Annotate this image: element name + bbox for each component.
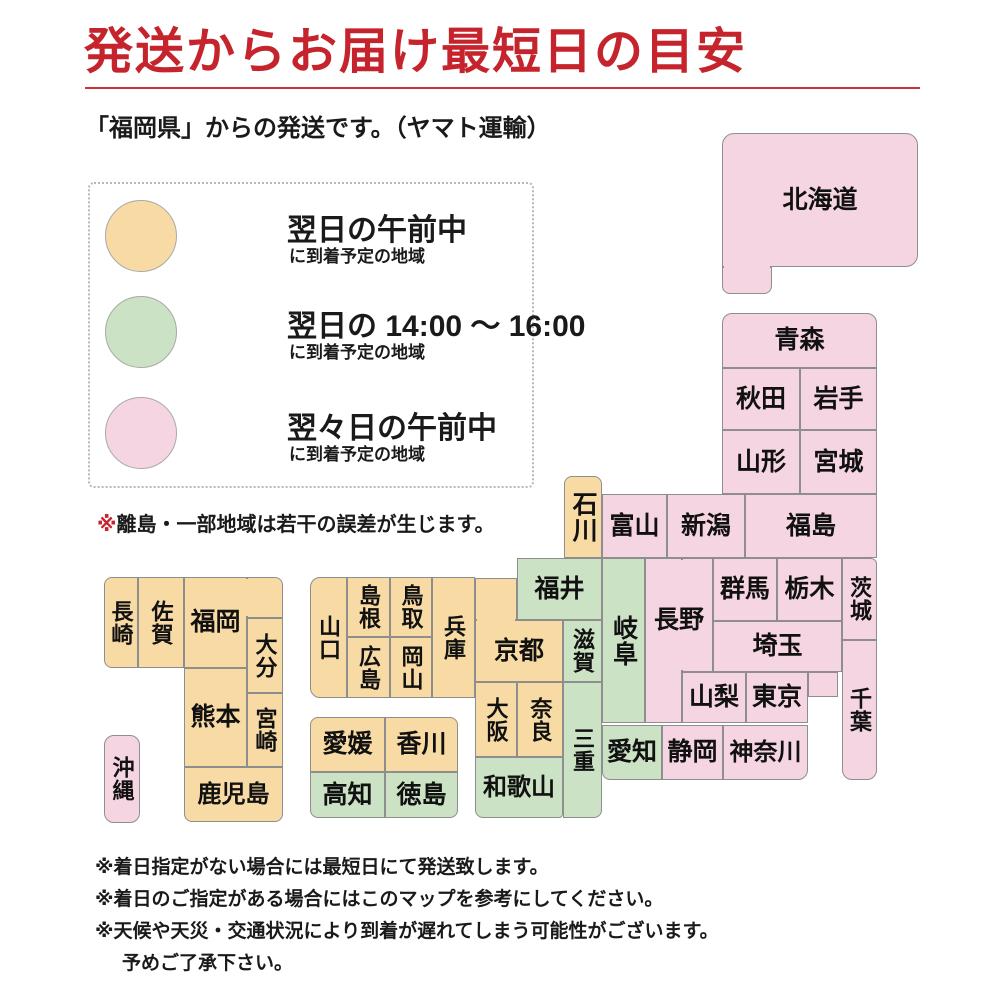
pref-akita: 秋田 xyxy=(722,368,800,430)
pref-aichi: 愛知 xyxy=(602,725,662,780)
footnote-3: ※天候や天災・交通状況により到着が遅れてしまう可能性がございます。 xyxy=(95,916,719,943)
pref-ishikawa: 石川 xyxy=(564,476,602,558)
pref-nara: 奈良 xyxy=(517,682,563,757)
pref-shizuoka: 静岡 xyxy=(662,725,723,780)
pref-fukuoka: 福岡 xyxy=(184,577,247,668)
pref-iwate: 岩手 xyxy=(800,368,877,430)
pref-hokkaido-tab xyxy=(722,267,772,294)
pref-oita: 大分 xyxy=(247,618,283,693)
pref-yamaguchi: 山口 xyxy=(310,577,347,698)
pref-mie: 三重 xyxy=(563,682,602,818)
hokkaido-seam xyxy=(724,265,770,269)
pref-kyoto: 京都 xyxy=(475,620,563,682)
pref-chiba: 千葉 xyxy=(842,640,877,780)
pref-saitama: 埼玉 xyxy=(713,621,842,672)
pref-tochigi: 栃木 xyxy=(777,558,842,621)
pref-shiga: 滋賀 xyxy=(563,620,602,682)
pref-tokushima: 徳島 xyxy=(385,772,458,818)
pref-kyoto-arm xyxy=(475,578,517,620)
footnote-4: 予めご了承下さい。 xyxy=(122,948,293,975)
pref-hiroshima: 広島 xyxy=(347,637,390,698)
pref-saga: 佐賀 xyxy=(138,577,184,668)
pref-ehime: 愛媛 xyxy=(310,717,385,772)
pref-nagano-label: 長野 xyxy=(645,598,713,638)
pref-osaka: 大阪 xyxy=(475,682,517,757)
pref-okayama: 岡山 xyxy=(390,637,432,698)
pref-kochi: 高知 xyxy=(310,772,385,818)
pref-kagawa: 香川 xyxy=(385,717,458,772)
pref-kanagawa: 神奈川 xyxy=(723,725,808,780)
kyoto-seam xyxy=(477,618,515,622)
pref-kagoshima: 鹿児島 xyxy=(184,767,283,822)
pref-miyagi: 宮城 xyxy=(800,430,877,494)
footnote-2: ※着日のご指定がある場合にはこのマップを参考にしてください。 xyxy=(95,884,663,911)
footnote-1: ※着日指定がない場合には最短日にて発送致します。 xyxy=(95,852,549,879)
pref-tokyo: 東京 xyxy=(746,672,808,723)
pref-shimane: 島根 xyxy=(347,577,390,637)
pref-yamanashi: 山梨 xyxy=(682,672,746,723)
pref-kumamoto: 熊本 xyxy=(184,668,247,767)
pref-hokkaido: 北海道 xyxy=(722,133,918,267)
pref-gunma: 群馬 xyxy=(713,558,777,621)
pref-nagano xyxy=(645,558,682,723)
pref-tottori: 鳥取 xyxy=(390,577,432,637)
pref-ibaraki: 茨城 xyxy=(842,558,877,640)
pref-fukuoka-ext xyxy=(247,577,283,618)
pref-hyogo: 兵庫 xyxy=(432,577,475,698)
shipping-info-page: 発送からお届け最短日の目安 「福岡県」からの発送です。（ヤマト運輸） 翌日の午前… xyxy=(0,0,1000,1000)
pref-gifu: 岐阜 xyxy=(602,558,645,723)
pref-aomori: 青森 xyxy=(722,313,877,368)
pref-niigata: 新潟 xyxy=(667,494,745,558)
pref-fukui: 福井 xyxy=(517,558,602,620)
pref-toyama: 富山 xyxy=(602,494,667,558)
pref-yamagata: 山形 xyxy=(722,430,800,494)
pref-miyazaki: 宮崎 xyxy=(247,693,283,767)
pref-fukushima: 福島 xyxy=(745,494,877,558)
pref-nagasaki: 長崎 xyxy=(104,577,138,668)
fukuoka-seam xyxy=(245,579,249,616)
pref-okinawa: 沖縄 xyxy=(104,735,140,823)
japan-map: 北海道 青森 秋田 岩手 山形 宮城 新潟 富山 福島 石川 群馬 栃木 茨城 … xyxy=(0,0,1000,1000)
pref-wakayama: 和歌山 xyxy=(475,757,563,818)
pref-saitama-bay-ext xyxy=(808,672,838,697)
